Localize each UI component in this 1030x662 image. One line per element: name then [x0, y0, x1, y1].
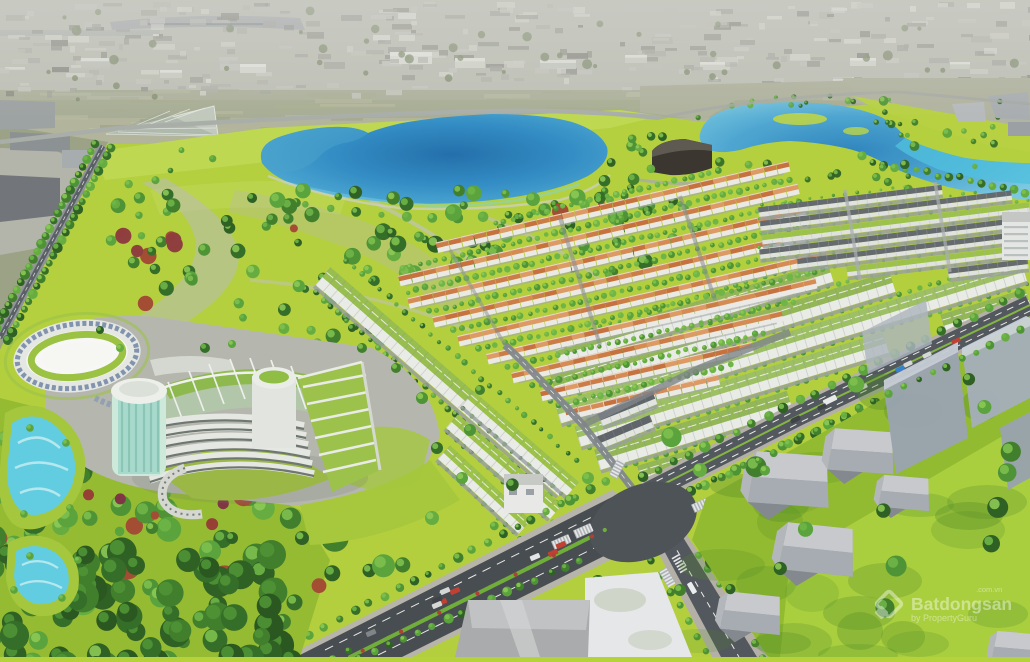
svg-text:by PropertyGuru: by PropertyGuru — [911, 613, 977, 623]
svg-text:.com.vn: .com.vn — [976, 585, 1002, 594]
svg-text:Batdongsan: Batdongsan — [911, 594, 1012, 614]
